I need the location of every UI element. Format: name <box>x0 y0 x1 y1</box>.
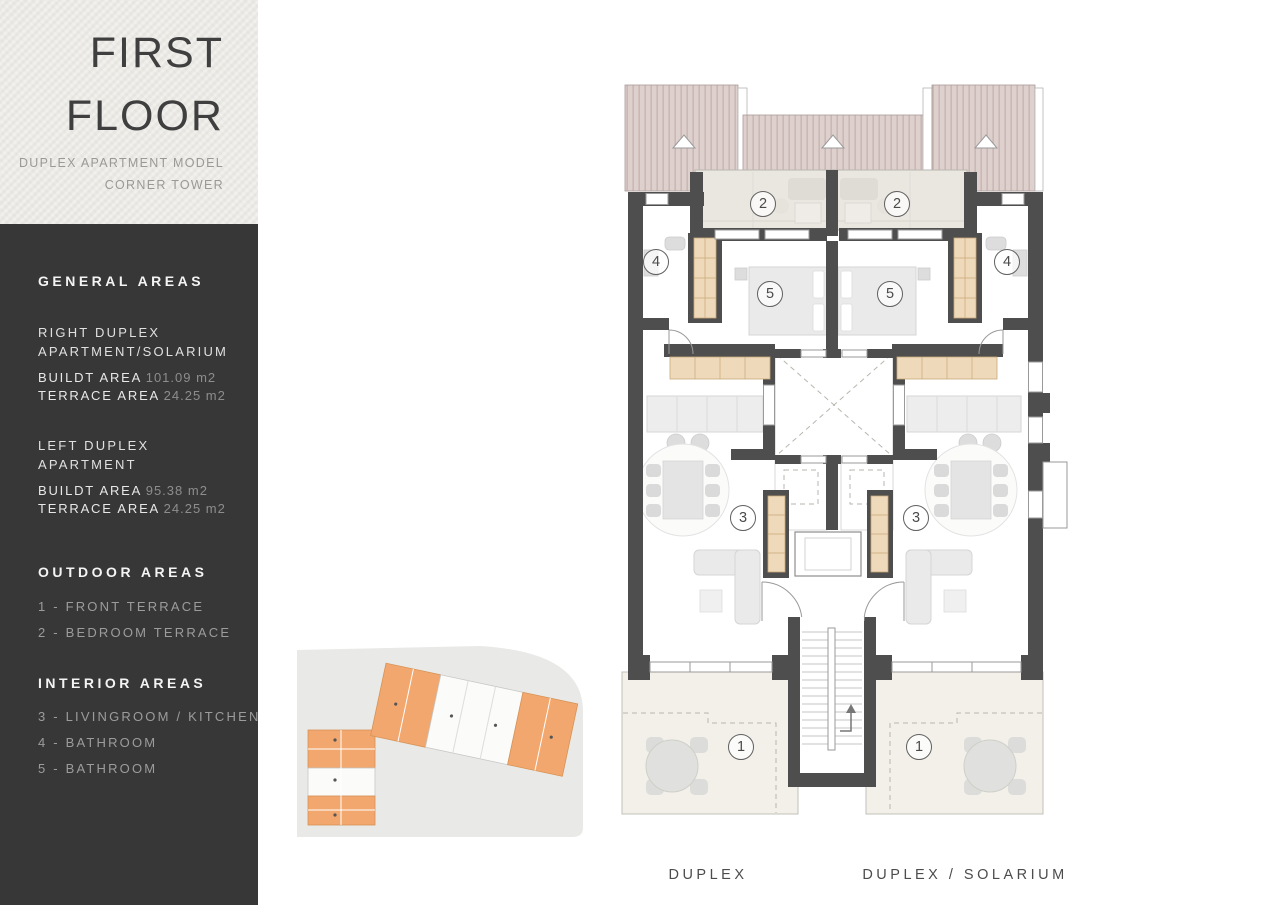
room-label-bedroom-terrace: 2 <box>750 191 776 217</box>
right-duplex-name-line2: APARTMENT/SOLARIUM <box>38 342 228 361</box>
right-duplex-name-line1: RIGHT DUPLEX <box>38 323 228 342</box>
right-built-label: BUILDT AREA <box>38 370 142 385</box>
outdoor-item-front-terrace: 1 - FRONT TERRACE <box>38 599 204 614</box>
outdoor-areas-heading: OUTDOOR AREAS <box>38 564 207 580</box>
atrium-lightwell <box>775 353 893 457</box>
right-terrace-value: 24.25 m2 <box>164 388 226 403</box>
site-building-left <box>308 730 375 825</box>
outdoor-item-bedroom-terrace: 2 - BEDROOM TERRACE <box>38 625 231 640</box>
legend-sidebar: GENERAL AREAS RIGHT DUPLEX APARTMENT/SOL… <box>0 224 258 905</box>
page-subtitle: DUPLEX APARTMENT MODEL CORNER TOWER <box>19 152 224 196</box>
left-duplex-stats: BUILDT AREA 95.38 m2 TERRACE AREA 24.25 … <box>38 482 226 518</box>
interior-item-livingroom: 3 - LIVINGROOM / KITCHEN <box>38 709 261 724</box>
caption-duplex-solarium: DUPLEX / SOLARIUM <box>845 867 1085 883</box>
left-duplex-name: LEFT DUPLEX APARTMENT <box>38 436 149 474</box>
page-title: FIRST FLOOR <box>66 22 224 148</box>
room-label-bathroom-5: 5 <box>757 281 783 307</box>
left-terrace-value: 24.25 m2 <box>164 501 226 516</box>
room-label-front-terrace: 1 <box>728 734 754 760</box>
left-built-value: 95.38 m2 <box>146 483 208 498</box>
interior-item-bathroom-4: 4 - BATHROOM <box>38 735 157 750</box>
general-areas-heading: GENERAL AREAS <box>38 273 204 289</box>
room-label-bathroom: 4 <box>643 249 669 275</box>
caption-duplex: DUPLEX <box>608 867 808 883</box>
title-line-2: FLOOR <box>66 85 224 148</box>
title-box: FIRST FLOOR DUPLEX APARTMENT MODEL CORNE… <box>0 0 258 224</box>
stairs-core <box>795 532 864 773</box>
page: FIRST FLOOR DUPLEX APARTMENT MODEL CORNE… <box>0 0 1280 905</box>
room-label-livingroom: 3 <box>903 505 929 531</box>
room-label-bathroom: 4 <box>994 249 1020 275</box>
floor-plan <box>600 55 1080 855</box>
room-label-livingroom: 3 <box>730 505 756 531</box>
subtitle-line-1: DUPLEX APARTMENT MODEL <box>19 152 224 174</box>
interior-areas-heading: INTERIOR AREAS <box>38 675 206 691</box>
room-label-front-terrace: 1 <box>906 734 932 760</box>
room-label-bathroom-5: 5 <box>877 281 903 307</box>
right-duplex-name: RIGHT DUPLEX APARTMENT/SOLARIUM <box>38 323 228 361</box>
subtitle-line-2: CORNER TOWER <box>19 174 224 196</box>
left-duplex-name-line2: APARTMENT <box>38 455 149 474</box>
left-terrace-label: TERRACE AREA <box>38 501 160 516</box>
room-label-bedroom-terrace: 2 <box>884 191 910 217</box>
site-location-map <box>290 640 600 845</box>
right-built-value: 101.09 m2 <box>146 370 216 385</box>
left-duplex-name-line1: LEFT DUPLEX <box>38 436 149 455</box>
right-terrace-label: TERRACE AREA <box>38 388 160 403</box>
title-line-1: FIRST <box>66 22 224 85</box>
interior-item-bathroom-5: 5 - BATHROOM <box>38 761 157 776</box>
right-duplex-stats: BUILDT AREA 101.09 m2 TERRACE AREA 24.25… <box>38 369 226 405</box>
left-built-label: BUILDT AREA <box>38 483 142 498</box>
